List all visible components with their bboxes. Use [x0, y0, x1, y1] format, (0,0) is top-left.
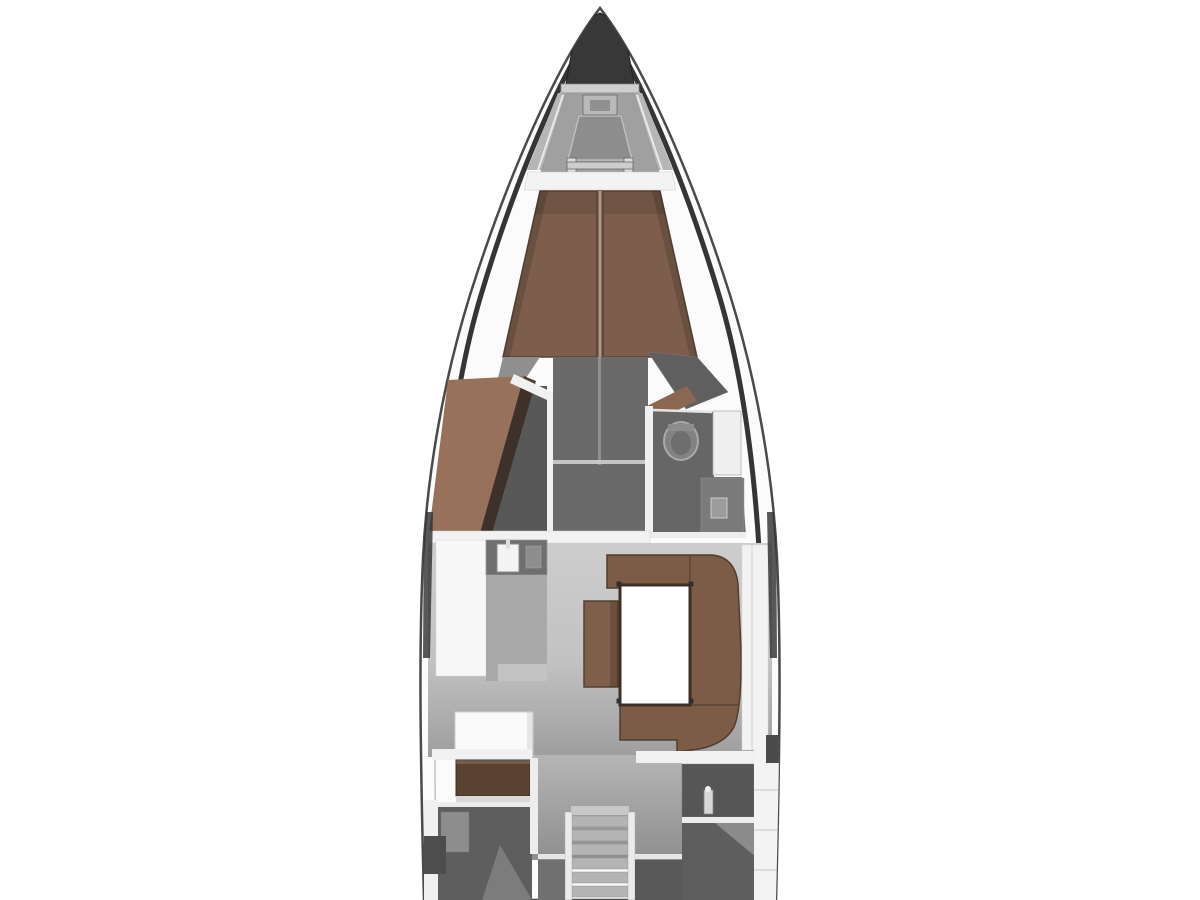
aft-bulkhead-port [432, 749, 532, 760]
table-knob-tl [617, 582, 622, 587]
table-knob-br [689, 699, 694, 704]
foredeck-hatch [568, 116, 632, 160]
floor-plan-canvas [0, 0, 1200, 900]
galley-faucet [506, 540, 510, 549]
stair-tread [572, 858, 628, 869]
companionway-post-left [565, 812, 572, 900]
stair-tread [572, 844, 628, 855]
stair-tread [572, 830, 628, 841]
stair-tread [572, 816, 628, 827]
stair-tread [572, 886, 628, 897]
companionway-post-right [628, 812, 635, 900]
galley-counter [436, 540, 486, 676]
table-knob-tr [689, 582, 694, 587]
stairs-landing [571, 806, 629, 815]
aft-bulkhead-starboard [636, 751, 766, 763]
salon-table [620, 585, 690, 705]
bow-hatch-glass [590, 100, 610, 111]
aft-head-faucet-knob [705, 786, 711, 792]
windlass-bar [567, 162, 633, 169]
anchor-locker [566, 13, 634, 84]
toilet-bowl [671, 431, 691, 455]
chart-table [456, 760, 530, 796]
stair-tread [572, 872, 628, 883]
bed-seam-light [599, 191, 602, 357]
bow-crossbar [561, 84, 639, 93]
toilet-tank [668, 424, 694, 431]
companionway-left-wall [530, 758, 538, 854]
forward-floor-seam-vertical [598, 357, 601, 465]
starboard-side-lockers [742, 545, 768, 750]
yacht-floor-plan [0, 0, 1200, 900]
aft-head-wall [682, 817, 754, 823]
galley-small-compartment [526, 546, 541, 568]
starboard-footwell [635, 860, 682, 900]
port-aft-cabin-wall [438, 802, 532, 807]
port-locker-dark [424, 836, 446, 874]
deck-beam [524, 172, 676, 190]
aft-head-faucet [704, 790, 713, 814]
seat-chest-shadow [610, 601, 618, 687]
port-footwell [538, 860, 565, 900]
chart-table-shelf [456, 796, 530, 802]
aft-head-floor [682, 764, 754, 817]
head-locker [713, 411, 741, 475]
port-threshold [538, 854, 565, 859]
starboard-threshold [635, 854, 682, 859]
head-threshold [648, 532, 746, 538]
starboard-side-lockers-aft [754, 748, 788, 900]
galley-worktop-step [498, 664, 547, 681]
vanity-sink [711, 498, 727, 518]
starboard-locker-dark [766, 735, 790, 763]
table-knob-bl [617, 699, 622, 704]
forward-floor-seam-horizontal [553, 460, 648, 464]
chart-table-highlight [456, 760, 530, 764]
forward-head-wall [645, 406, 653, 537]
